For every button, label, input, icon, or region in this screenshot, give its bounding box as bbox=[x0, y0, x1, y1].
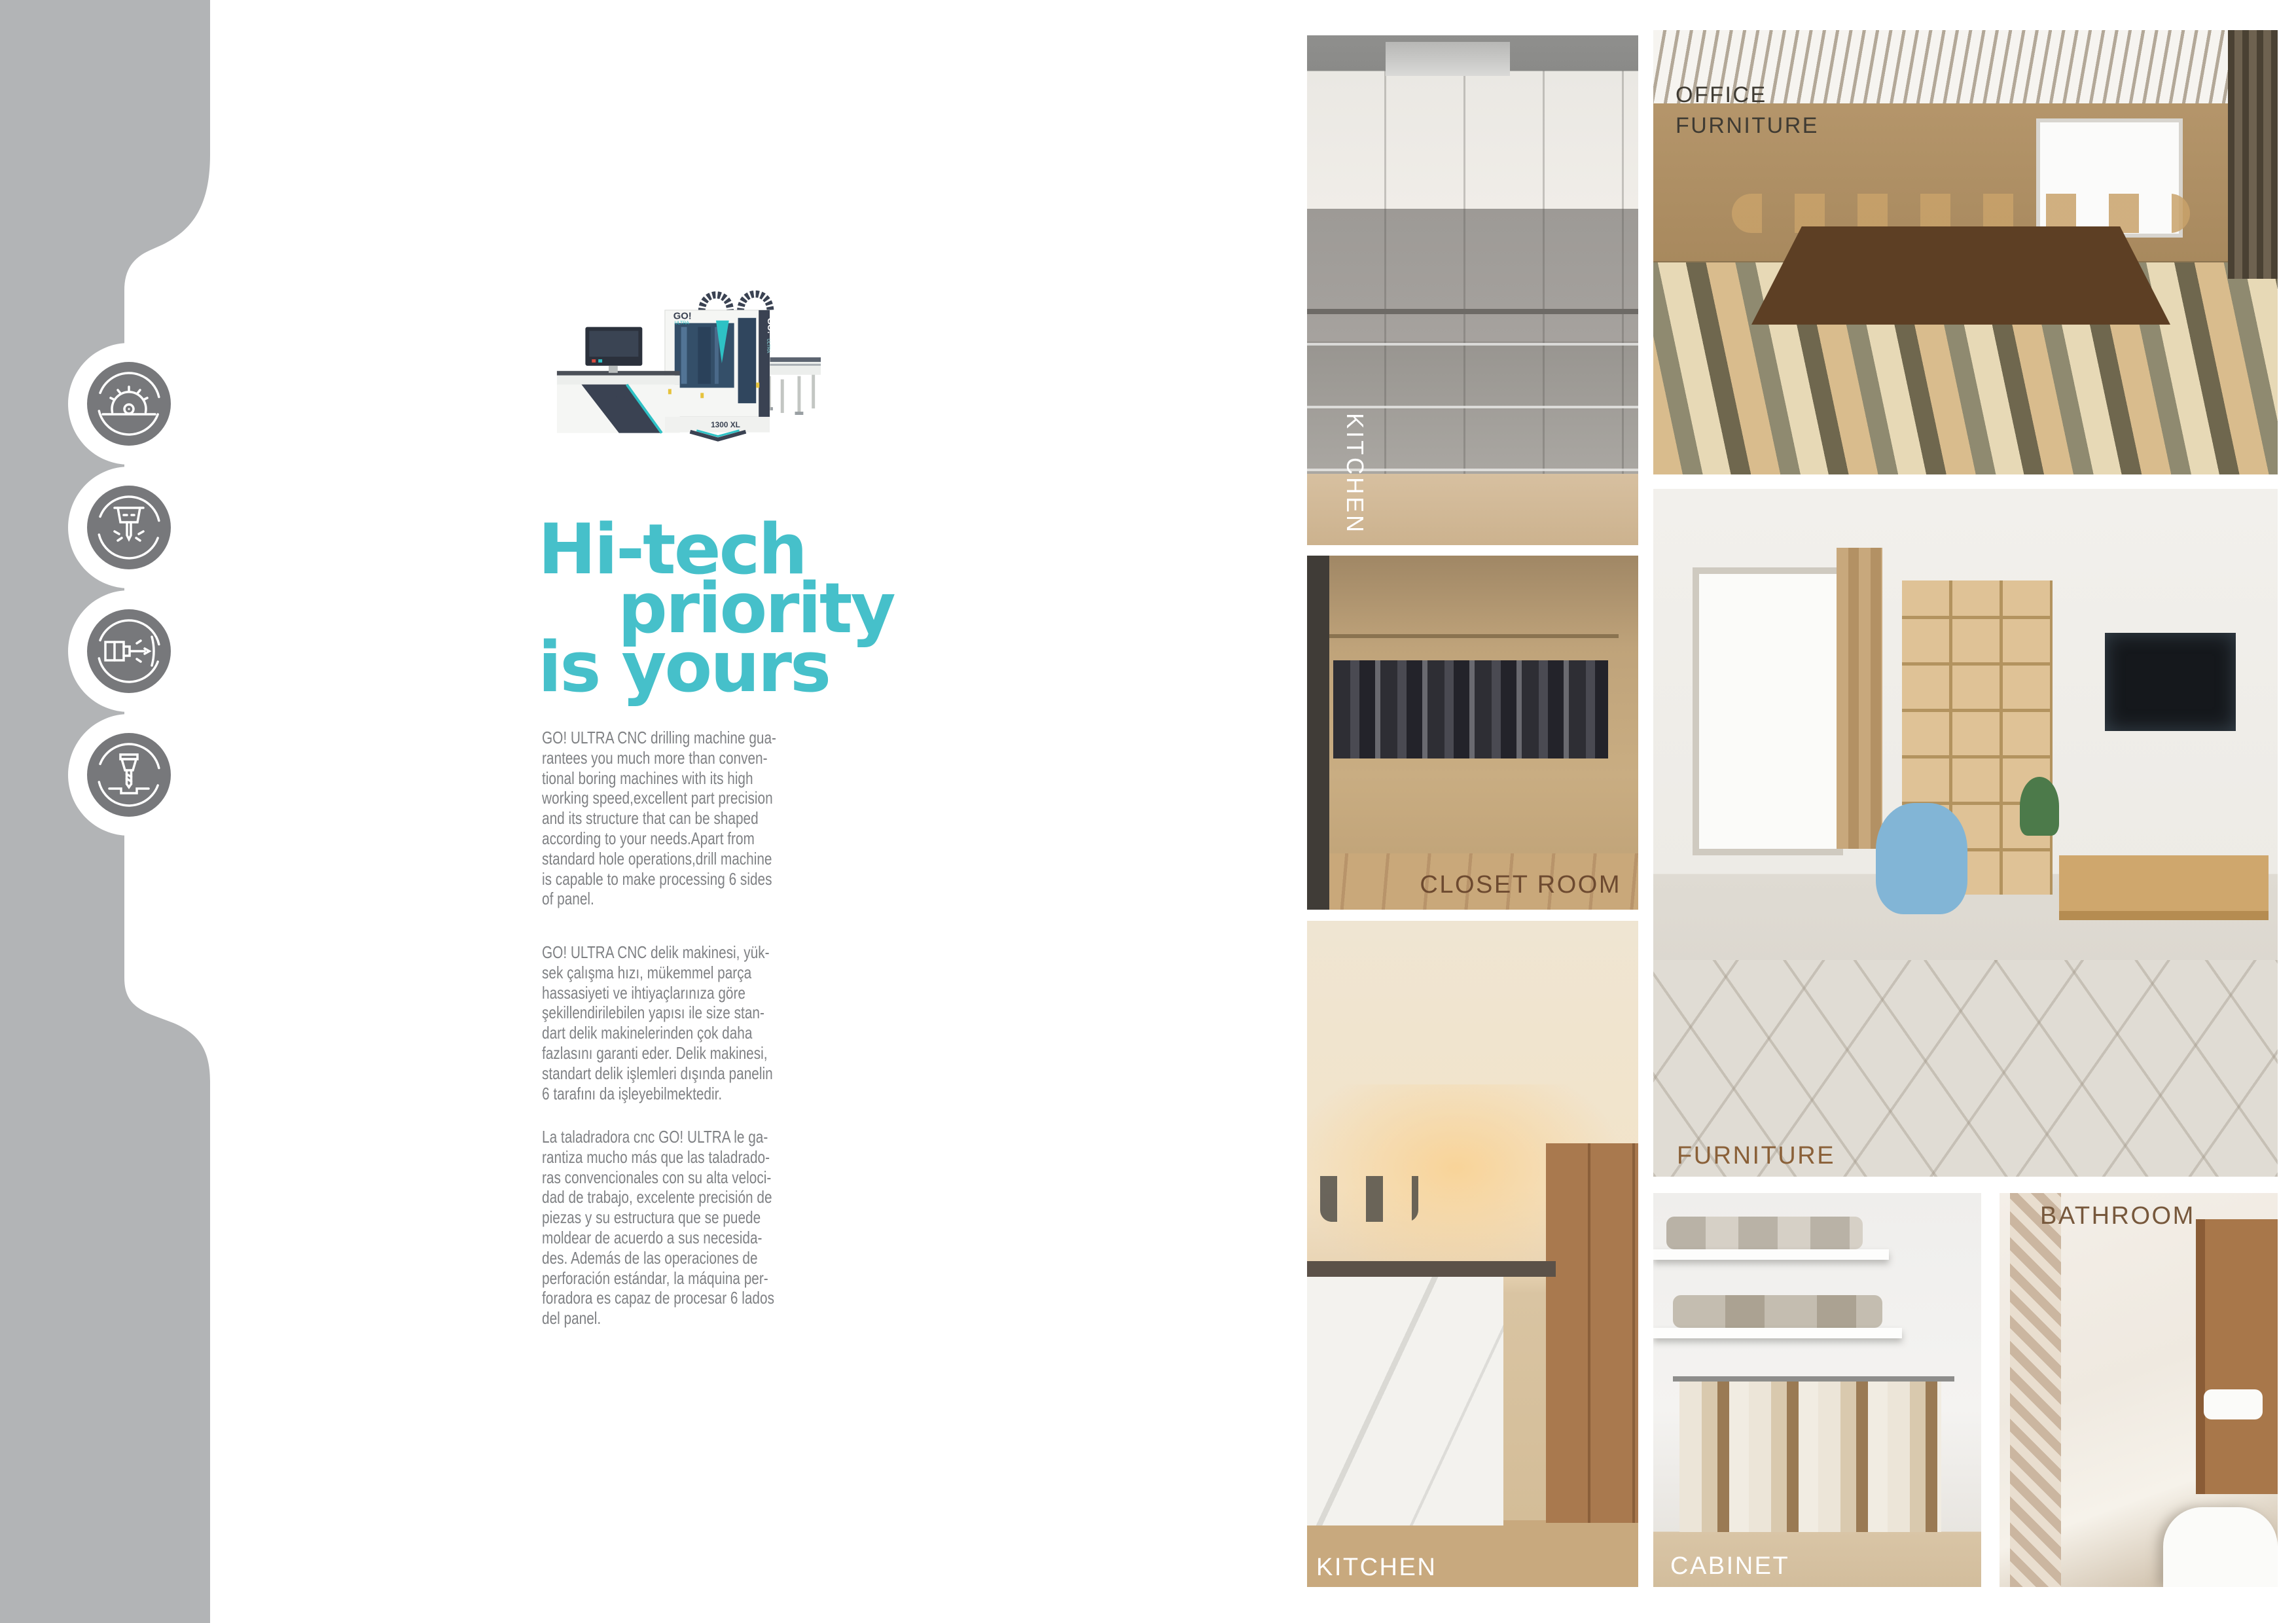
hanging-clothes-shapes bbox=[1679, 1382, 1941, 1532]
window-shape bbox=[1693, 567, 1843, 855]
tv-screen-shape bbox=[2105, 633, 2236, 731]
counter-edge bbox=[1307, 1261, 1556, 1277]
photo-label-cabinet: CABINET bbox=[1670, 1552, 1789, 1580]
marble-island-shape bbox=[1307, 1277, 1503, 1525]
horizontal-drill-icon bbox=[87, 609, 171, 693]
photo-bathroom: BATHROOM bbox=[2000, 1193, 2278, 1587]
clothes-rail bbox=[1673, 1376, 1954, 1382]
machine-window-glare bbox=[681, 327, 687, 384]
machine-logo: GO! bbox=[673, 312, 692, 322]
photo-label-bathroom: BATHROOM bbox=[2040, 1202, 2195, 1230]
machine-window-shade bbox=[698, 327, 711, 384]
paragraph-spanish: La taladradora cnc GO! ULTRA le ga- rant… bbox=[542, 1127, 835, 1329]
machine-cable-chain bbox=[702, 295, 730, 312]
paragraph-english: GO! ULTRA CNC drilling machine gua- rant… bbox=[542, 728, 835, 909]
circular-saw-icon bbox=[87, 362, 171, 446]
shelf-contents bbox=[1673, 1295, 1882, 1328]
machine-warning-sticker bbox=[668, 389, 672, 394]
white-shelf bbox=[1653, 1249, 1889, 1260]
curtain-shape bbox=[1837, 548, 1882, 849]
hanging-pots-shapes bbox=[1320, 1176, 1418, 1222]
photo-kitchen-cabinets: KITCHEN bbox=[1307, 35, 1638, 545]
photo-label-office-furniture: OFFICE FURNITURE bbox=[1676, 80, 1819, 141]
product-image-cnc-machine: GO! ULTRA GO! ULTRA AES 1300 XL bbox=[552, 277, 823, 442]
machine-conveyor bbox=[762, 357, 821, 415]
glass-door-frame bbox=[1307, 556, 1329, 910]
machine-window-glare bbox=[715, 327, 719, 384]
machine-model: 1300 XL bbox=[711, 420, 740, 429]
machine-table-top bbox=[557, 371, 680, 376]
machine-control-screen bbox=[589, 331, 638, 357]
meeting-table-shape bbox=[1751, 226, 2170, 325]
plant-shape bbox=[2020, 777, 2059, 836]
bathtub-shape bbox=[2163, 1507, 2278, 1587]
brochure-page: { "page": {"width": 3508, "height": 2480… bbox=[0, 0, 2296, 1623]
photo-living-room-furniture: FURNITURE bbox=[1653, 489, 2278, 1177]
plunge-router-bit-icon bbox=[87, 733, 171, 817]
paragraph-turkish: GO! ULTRA CNC delik makinesi, yük- sek ç… bbox=[542, 942, 835, 1103]
closet-shelf-line bbox=[1327, 634, 1619, 638]
machine-start-button bbox=[598, 359, 602, 363]
photo-closet-room: CLOSET ROOM bbox=[1307, 556, 1638, 910]
photo-label-furniture: FURNITURE bbox=[1677, 1142, 1835, 1170]
blue-armchair-shape bbox=[1876, 803, 1967, 914]
page-title: Hi-tech priority is yours bbox=[538, 520, 846, 697]
machine-window-right bbox=[738, 318, 757, 403]
machine-warning-sticker bbox=[756, 383, 759, 388]
white-shelf bbox=[1653, 1328, 1902, 1338]
machine-table bbox=[557, 376, 680, 385]
photo-wood-kitchen: KITCHEN bbox=[1307, 921, 1638, 1587]
tall-wood-cabinet bbox=[1546, 1143, 1638, 1523]
machine-side-logo: GO! bbox=[766, 318, 776, 334]
photo-label-kitchen-top: KITCHEN bbox=[1341, 413, 1369, 535]
title-line-3: is yours bbox=[538, 638, 846, 697]
machine-side-logo-secondary: ULTRA bbox=[766, 338, 770, 353]
photo-label-kitchen-bottom: KITCHEN bbox=[1316, 1554, 1437, 1582]
countertop-line bbox=[1307, 309, 1638, 314]
sink-shape bbox=[2204, 1389, 2263, 1419]
left-sidebar bbox=[0, 0, 236, 1623]
wood-vanity-shape bbox=[2196, 1219, 2278, 1494]
machine-cable-chain bbox=[741, 294, 770, 312]
vertical-drill-head-icon bbox=[87, 486, 171, 569]
hanging-clothes-shapes bbox=[1333, 660, 1608, 758]
machine-stop-button bbox=[592, 359, 596, 363]
mosaic-tile-strip bbox=[2010, 1193, 2061, 1587]
machine-warning-sticker bbox=[700, 393, 704, 398]
tv-console-shape bbox=[2059, 855, 2269, 920]
photo-label-closet-room: CLOSET ROOM bbox=[1420, 871, 1621, 899]
machine-panel-stand bbox=[609, 366, 618, 373]
machine-brand: AES bbox=[613, 395, 629, 402]
wall-slats bbox=[2228, 30, 2278, 279]
range-hood-shape bbox=[1386, 42, 1510, 76]
photo-office-meeting-room: OFFICE FURNITURE bbox=[1653, 30, 2278, 474]
shelf-contents bbox=[1666, 1217, 1863, 1249]
photo-cabinet-interior: CABINET bbox=[1653, 1193, 1981, 1587]
machine-logo-secondary: ULTRA bbox=[675, 321, 690, 326]
